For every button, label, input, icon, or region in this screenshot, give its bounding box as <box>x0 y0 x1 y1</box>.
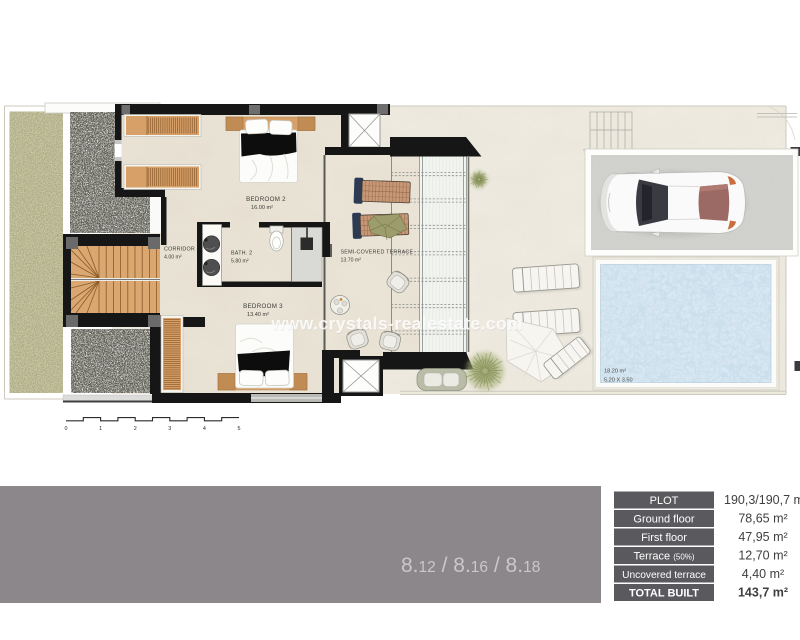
svg-text:190,3/190,7 m²: 190,3/190,7 m² <box>724 493 800 507</box>
svg-text:16.00 m²: 16.00 m² <box>251 205 273 211</box>
svg-text:4,40 m²: 4,40 m² <box>742 567 784 581</box>
svg-text:78,65 m²: 78,65 m² <box>738 511 787 525</box>
svg-text:Uncovered terrace: Uncovered terrace <box>622 570 706 581</box>
svg-text:First floor: First floor <box>641 532 687 544</box>
svg-text:5: 5 <box>238 426 241 432</box>
svg-text:5.20 X 3.50: 5.20 X 3.50 <box>604 378 633 384</box>
svg-text:5.80 m²: 5.80 m² <box>231 259 249 265</box>
svg-text:0: 0 <box>65 426 68 432</box>
svg-text:2: 2 <box>134 426 137 432</box>
svg-text:TOTAL BUILT: TOTAL BUILT <box>629 587 699 599</box>
svg-text:BATH. 2: BATH. 2 <box>231 251 252 257</box>
svg-text:Ground floor: Ground floor <box>633 513 694 525</box>
svg-text:3: 3 <box>168 426 171 432</box>
svg-text:47,95 m²: 47,95 m² <box>738 530 787 544</box>
svg-text:4: 4 <box>203 426 206 432</box>
svg-text:BEDROOM 3: BEDROOM 3 <box>243 303 283 310</box>
svg-text:Terrace (50%): Terrace (50%) <box>633 550 694 562</box>
svg-text:13.70 m²: 13.70 m² <box>341 258 362 264</box>
svg-text:12,70 m²: 12,70 m² <box>738 548 787 562</box>
svg-text:BEDROOM 2: BEDROOM 2 <box>246 196 286 203</box>
svg-text:4.00 m²: 4.00 m² <box>164 255 182 261</box>
svg-text:1: 1 <box>99 426 102 432</box>
svg-text:13.40 m²: 13.40 m² <box>247 312 269 318</box>
svg-text:SEMI-COVERED TERRACE: SEMI-COVERED TERRACE <box>341 250 414 256</box>
svg-text:CORRIDOR: CORRIDOR <box>164 247 195 253</box>
svg-text:143,7 m²: 143,7 m² <box>738 585 788 599</box>
svg-text:18.20 m²: 18.20 m² <box>604 369 626 375</box>
svg-text:www.crystals-realestate.com: www.crystals-realestate.com <box>271 314 524 334</box>
svg-text:PLOT: PLOT <box>650 495 679 507</box>
